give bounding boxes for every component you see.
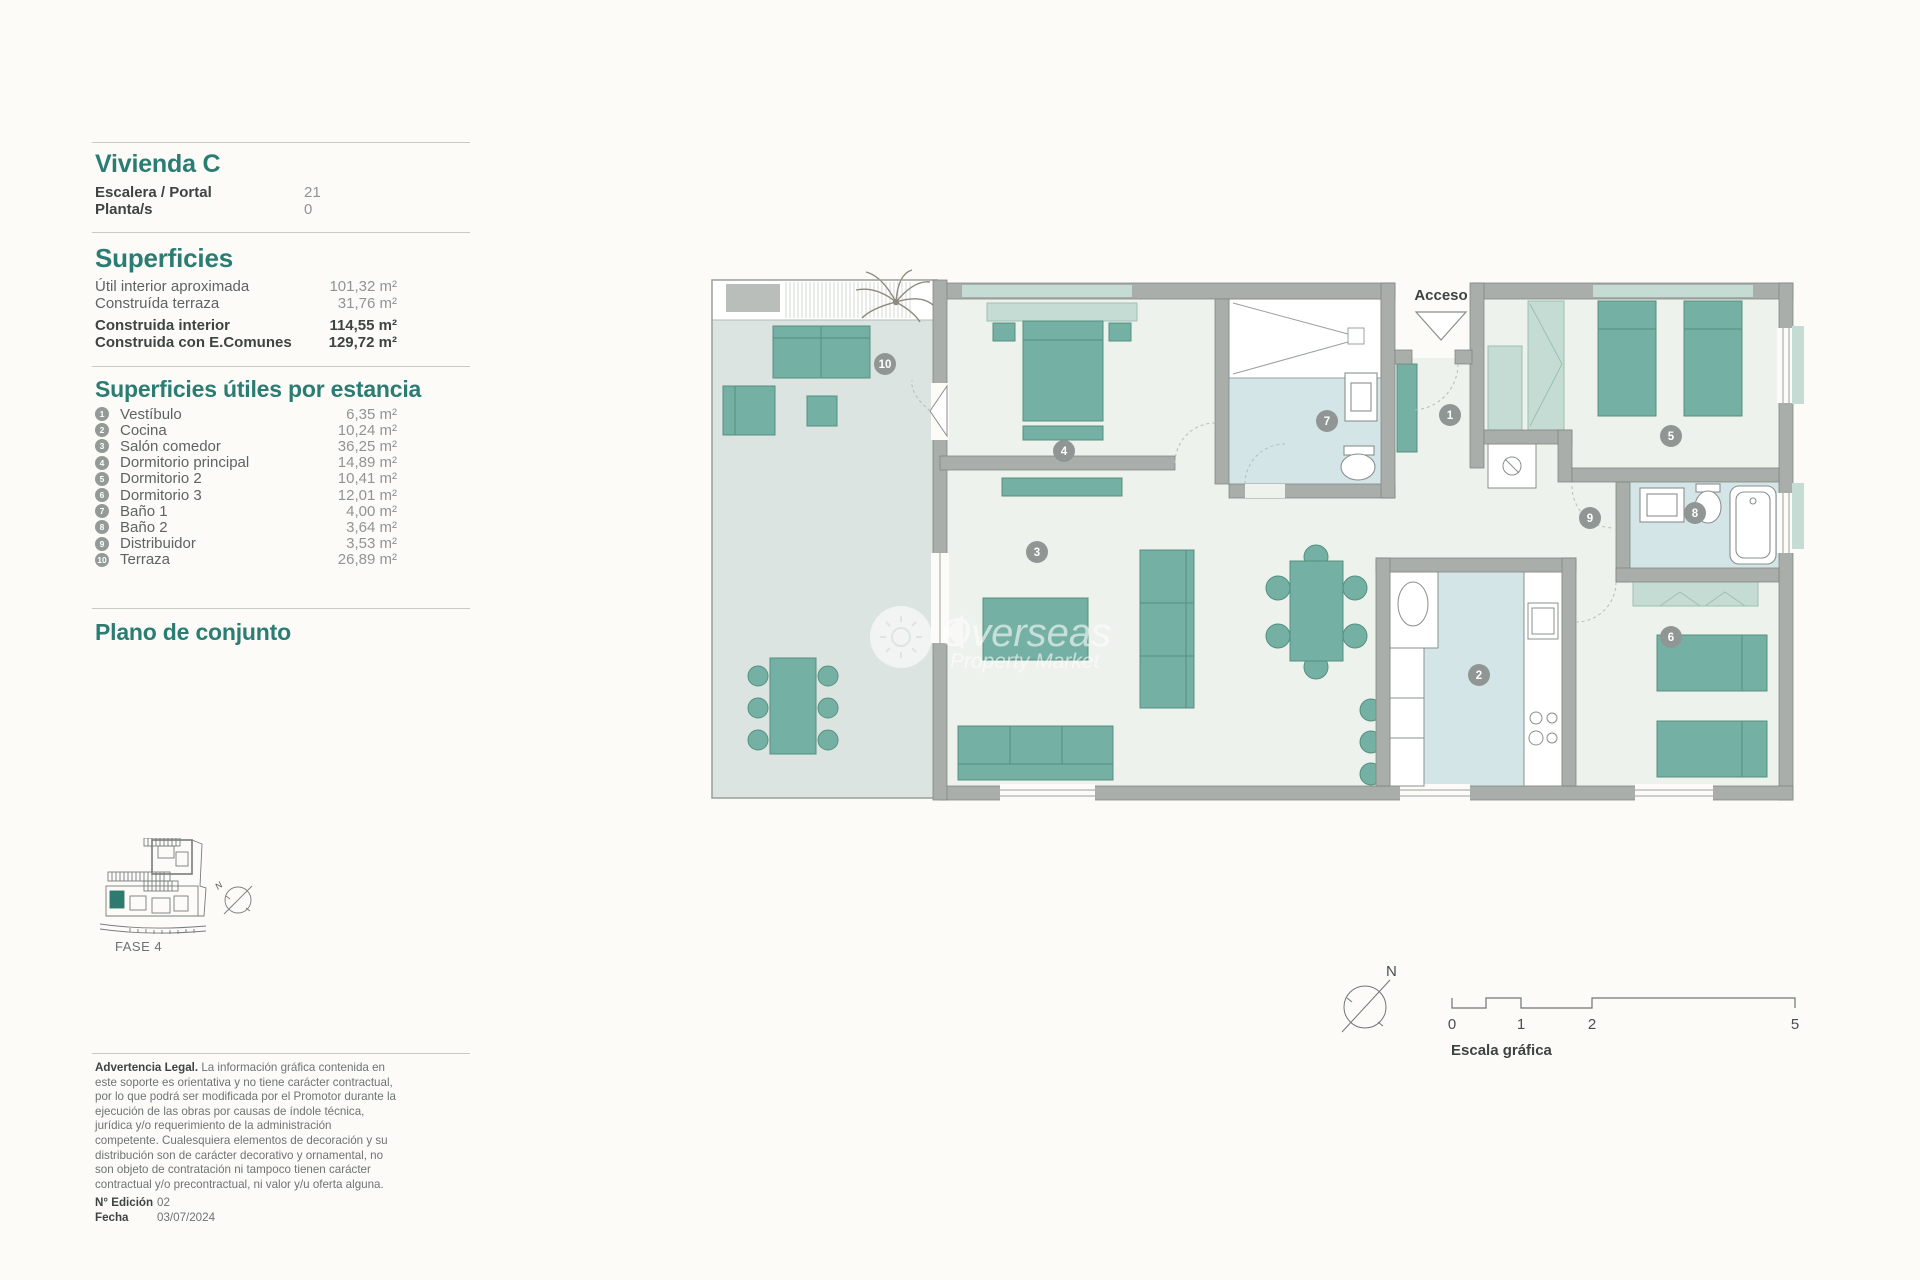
room-area: 4,00 m²	[346, 503, 397, 520]
divider	[92, 142, 470, 143]
washer-closet-icon	[1488, 444, 1536, 488]
superficies-title: Superficies	[95, 243, 233, 274]
compass-icon	[1342, 980, 1390, 1032]
svg-text:1: 1	[1517, 1016, 1525, 1033]
room-label: Dormitorio 3	[120, 487, 202, 504]
divider	[92, 1053, 470, 1054]
field-planta: Planta/s 0	[95, 201, 397, 218]
watermark-line1: Overseas	[940, 611, 1111, 655]
room-area: 12,01 m²	[338, 487, 397, 504]
room-row: 4Dormitorio principal14,89 m²	[95, 455, 397, 471]
scale-ticks: 0 1 2 5	[1448, 1016, 1799, 1033]
svg-text:3: 3	[1034, 547, 1040, 559]
legal-heading: Advertencia Legal.	[95, 1061, 198, 1074]
divider	[92, 366, 470, 367]
svg-text:2: 2	[1476, 670, 1482, 682]
superficie-value: 31,76 m²	[338, 295, 397, 312]
watermark: Overseas Property Market	[870, 606, 1111, 673]
badge-9: 9	[1579, 507, 1601, 529]
unit-title: Vivienda C	[95, 150, 220, 179]
room-area: 26,89 m²	[338, 551, 397, 568]
room-number-badge: 1	[95, 407, 109, 421]
room-number-badge: 4	[95, 456, 109, 470]
badge-1: 1	[1439, 404, 1461, 426]
room-row: 7Baño 14,00 m²	[95, 503, 397, 519]
legal-body: La información gráfica contenida en este…	[95, 1061, 396, 1191]
svg-text:10: 10	[879, 359, 892, 371]
superficie-value: 114,55 m²	[329, 317, 397, 334]
site-compass-icon	[224, 886, 252, 914]
superficie-label: Construída terraza	[95, 295, 219, 312]
room-label: Dormitorio 2	[120, 470, 202, 487]
terrace-planter	[712, 270, 937, 322]
room-number-badge: 5	[95, 472, 109, 486]
estancias-title: Superficies útiles por estancia	[95, 376, 421, 403]
room-label: Cocina	[120, 422, 167, 439]
acceso-label: Acceso	[1414, 287, 1467, 304]
room-list: 1Vestíbulo6,35 m² 2Cocina10,24 m² 3Salón…	[95, 406, 397, 568]
room-label: Terraza	[120, 551, 170, 568]
superficie-row-bold: Construida con E.Comunes 129,72 m²	[95, 334, 397, 351]
room-number-badge: 2	[95, 423, 109, 437]
badge-7: 7	[1316, 410, 1338, 432]
room-number-badge: 9	[95, 537, 109, 551]
field-planta-label: Planta/s	[95, 201, 153, 218]
room-row: 5Dormitorio 210,41 m²	[95, 471, 397, 487]
room-area: 14,89 m²	[338, 454, 397, 471]
site-plan: N	[100, 838, 270, 938]
edition-value: 02	[157, 1196, 170, 1209]
date-row: Fecha 03/07/2024	[95, 1211, 129, 1225]
room-row: 1Vestíbulo6,35 m²	[95, 406, 397, 422]
shower-icon	[1229, 299, 1381, 378]
svg-text:2: 2	[1588, 1016, 1596, 1033]
field-escalera-label: Escalera / Portal	[95, 184, 212, 201]
room-area: 10,41 m²	[338, 470, 397, 487]
svg-text:9: 9	[1587, 513, 1593, 525]
room-number-badge: 3	[95, 439, 109, 453]
superficie-label: Construida interior	[95, 317, 230, 334]
svg-text:5: 5	[1668, 431, 1675, 443]
fase-label: FASE 4	[115, 939, 162, 954]
room-area: 10,24 m²	[338, 422, 397, 439]
room-area: 3,64 m²	[346, 519, 397, 536]
room-number-badge: 10	[95, 553, 109, 567]
superficie-row-bold: Construida interior 114,55 m²	[95, 317, 397, 334]
field-planta-value: 0	[304, 201, 312, 218]
room-number-badge: 7	[95, 504, 109, 518]
site-north-label: N	[213, 879, 225, 891]
room-area: 36,25 m²	[338, 438, 397, 455]
svg-text:8: 8	[1692, 508, 1699, 520]
floorplan-sheet: { "unit": { "title": "Vivienda C", "fiel…	[0, 0, 1920, 1280]
date-label: Fecha	[95, 1211, 129, 1224]
room-number-badge: 6	[95, 488, 109, 502]
entry-wardrobe	[1397, 364, 1417, 452]
room-label: Salón comedor	[120, 438, 221, 455]
room-number-badge: 8	[95, 520, 109, 534]
badge-10: 10	[874, 353, 896, 375]
legal-text: Advertencia Legal. La información gráfic…	[95, 1061, 396, 1192]
edition-row: N° Edición 02	[95, 1196, 153, 1210]
room-row: 2Cocina10,24 m²	[95, 422, 397, 438]
floor-plan: Acceso 1 2 3 4 5 6 7 8 9 10 Overseas Pro…	[700, 268, 1810, 818]
highlighted-unit	[110, 891, 124, 908]
superficie-label: Útil interior aproximada	[95, 278, 249, 295]
superficie-label: Construida con E.Comunes	[95, 334, 292, 351]
svg-text:1: 1	[1447, 410, 1454, 422]
badge-4: 4	[1053, 440, 1075, 462]
room-row: 9Distribuidor3,53 m²	[95, 536, 397, 552]
svg-text:0: 0	[1448, 1016, 1456, 1033]
edition-label: N° Edición	[95, 1196, 153, 1209]
superficie-row: Útil interior aproximada 101,32 m²	[95, 278, 397, 295]
watermark-line2: Property Market	[950, 650, 1101, 673]
badge-6: 6	[1660, 626, 1682, 648]
divider	[92, 608, 470, 609]
badge-2: 2	[1468, 664, 1490, 686]
room-area: 6,35 m²	[346, 406, 397, 423]
svg-text:5: 5	[1791, 1016, 1799, 1033]
badge-5: 5	[1660, 425, 1682, 447]
field-escalera-value: 21	[304, 184, 321, 201]
superficie-row: Construída terraza 31,76 m²	[95, 295, 397, 312]
scale-bar	[1452, 998, 1795, 1008]
conjunto-title: Plano de conjunto	[95, 619, 291, 646]
date-value: 03/07/2024	[157, 1211, 215, 1224]
superficie-value: 129,72 m²	[329, 334, 397, 351]
site-road	[100, 924, 206, 934]
room-label: Dormitorio principal	[120, 454, 249, 471]
room-row: 3Salón comedor36,25 m²	[95, 438, 397, 454]
scale-area: N 0 1 2 5 Escala gráfica	[1320, 940, 1820, 1065]
scale-label: Escala gráfica	[1451, 1042, 1553, 1059]
badge-3: 3	[1026, 541, 1048, 563]
badge-8: 8	[1684, 502, 1706, 524]
room-label: Distribuidor	[120, 535, 196, 552]
north-label: N	[1386, 963, 1397, 980]
svg-text:4: 4	[1061, 446, 1068, 458]
svg-text:7: 7	[1324, 416, 1330, 428]
divider	[92, 232, 470, 233]
room-row: 6Dormitorio 312,01 m²	[95, 487, 397, 503]
field-escalera: Escalera / Portal 21	[95, 184, 397, 201]
room-area: 3,53 m²	[346, 535, 397, 552]
superficie-value: 101,32 m²	[329, 278, 397, 295]
room-label: Vestíbulo	[120, 406, 182, 423]
room-label: Baño 1	[120, 503, 168, 520]
room-row: 8Baño 23,64 m²	[95, 519, 397, 535]
room-label: Baño 2	[120, 519, 168, 536]
svg-text:6: 6	[1668, 632, 1674, 644]
room-row: 10Terraza26,89 m²	[95, 552, 397, 568]
